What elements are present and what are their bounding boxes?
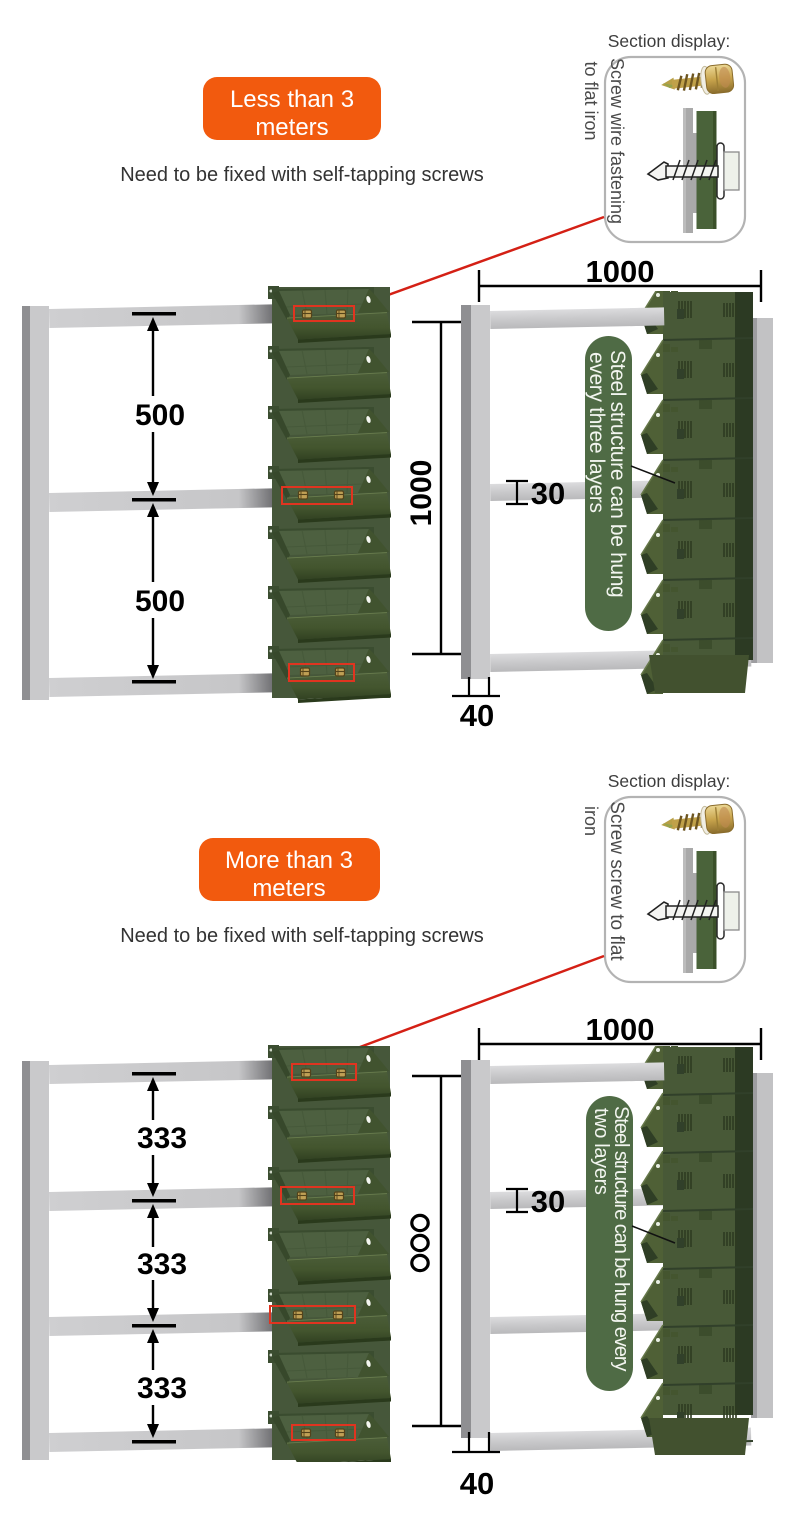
- svg-text:1000: 1000: [586, 254, 655, 289]
- svg-text:1000: 1000: [586, 1012, 655, 1047]
- svg-text:Less than 3: Less than 3: [230, 86, 354, 113]
- svg-text:333: 333: [137, 1248, 187, 1281]
- svg-text:Section display:: Section display:: [608, 771, 731, 791]
- svg-text:Screw screw to flat: Screw screw to flat: [606, 801, 627, 961]
- svg-text:30: 30: [531, 476, 565, 511]
- svg-text:meters: meters: [252, 875, 325, 902]
- svg-text:500: 500: [135, 399, 185, 432]
- svg-text:Need to be fixed with self-tap: Need to be fixed with self-tapping screw…: [120, 164, 484, 186]
- svg-text:Need to be fixed with self-tap: Need to be fixed with self-tapping screw…: [120, 925, 484, 947]
- svg-text:1000: 1000: [405, 460, 438, 527]
- svg-text:Screw wire fastening: Screw wire fastening: [607, 58, 627, 224]
- svg-text:to flat iron: to flat iron: [581, 61, 601, 140]
- svg-text:More than 3: More than 3: [225, 847, 353, 874]
- svg-text:Section display:: Section display:: [608, 31, 731, 51]
- svg-text:every three layers: every three layers: [585, 352, 608, 513]
- svg-text:iron: iron: [581, 806, 601, 836]
- svg-text:500: 500: [135, 585, 185, 618]
- svg-text:30: 30: [531, 1184, 565, 1219]
- svg-text:two layers: two layers: [590, 1108, 612, 1195]
- svg-text:40: 40: [460, 1466, 494, 1501]
- svg-text:333: 333: [137, 1372, 187, 1405]
- svg-text:40: 40: [460, 698, 494, 733]
- svg-text:meters: meters: [255, 114, 328, 141]
- svg-text:333: 333: [137, 1122, 187, 1155]
- svg-text:Steel structure can be hung ev: Steel structure can be hung every: [610, 1106, 632, 1371]
- svg-text:Steel structure can be hung: Steel structure can be hung: [606, 350, 629, 597]
